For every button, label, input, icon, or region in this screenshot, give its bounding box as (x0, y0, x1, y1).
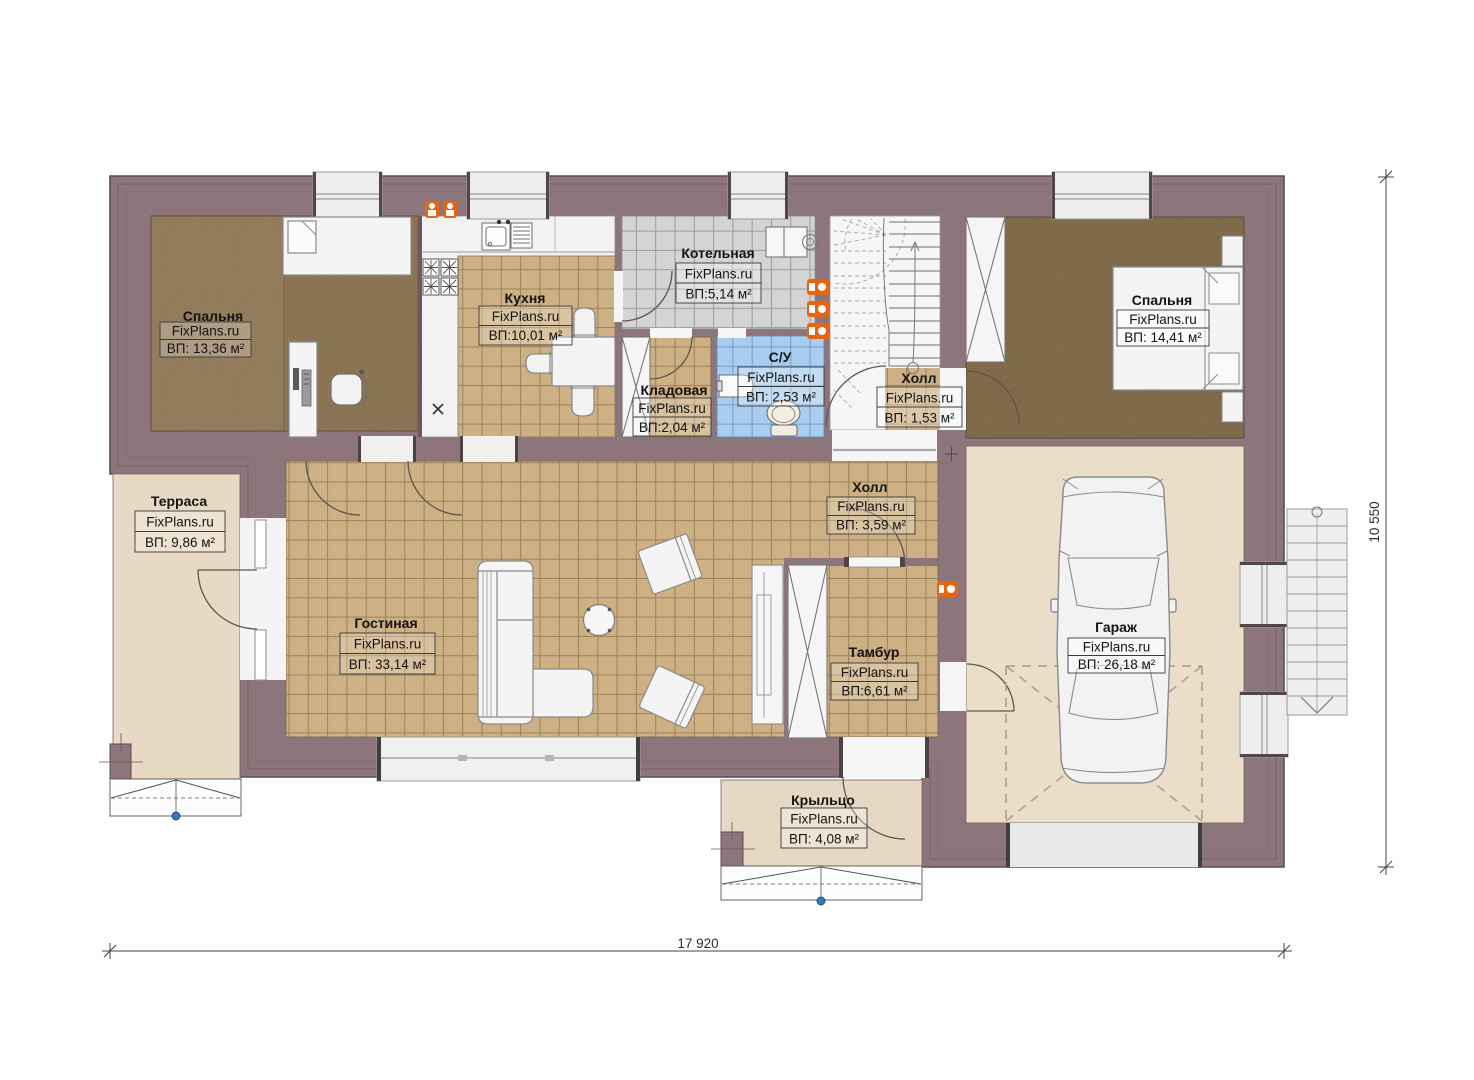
svg-text:ВП: 33,14 м²: ВП: 33,14 м² (349, 657, 427, 672)
svg-text:FixPlans.ru: FixPlans.ru (841, 665, 909, 680)
svg-text:ВП: 2,53 м²: ВП: 2,53 м² (746, 390, 817, 405)
svg-text:Спальня: Спальня (1132, 292, 1192, 308)
svg-text:С/У: С/У (769, 349, 792, 365)
svg-text:Кухня: Кухня (505, 290, 546, 306)
svg-text:FixPlans.ru: FixPlans.ru (685, 267, 753, 282)
svg-text:FixPlans.ru: FixPlans.ru (747, 370, 815, 385)
svg-text:Тамбур: Тамбур (849, 644, 900, 660)
svg-text:FixPlans.ru: FixPlans.ru (1129, 312, 1197, 327)
svg-text:ВП: 26,18 м²: ВП: 26,18 м² (1078, 657, 1156, 672)
svg-text:FixPlans.ru: FixPlans.ru (886, 391, 954, 406)
svg-text:FixPlans.ru: FixPlans.ru (172, 324, 240, 339)
svg-text:ВП:6,61 м²: ВП:6,61 м² (841, 684, 908, 699)
svg-text:Гостиная: Гостиная (354, 615, 417, 631)
svg-text:Гараж: Гараж (1095, 619, 1138, 635)
svg-text:FixPlans.ru: FixPlans.ru (638, 401, 706, 416)
svg-text:FixPlans.ru: FixPlans.ru (146, 515, 214, 530)
svg-text:ВП: 9,86 м²: ВП: 9,86 м² (145, 535, 216, 550)
svg-text:FixPlans.ru: FixPlans.ru (492, 309, 560, 324)
svg-text:Холл: Холл (901, 370, 936, 386)
svg-text:ВП:5,14 м²: ВП:5,14 м² (685, 287, 752, 302)
svg-text:Холл: Холл (852, 479, 887, 495)
svg-text:17 920: 17 920 (677, 936, 718, 951)
svg-text:ВП:10,01 м²: ВП:10,01 м² (489, 328, 563, 343)
svg-text:FixPlans.ru: FixPlans.ru (1083, 640, 1151, 655)
svg-text:ВП: 1,53 м²: ВП: 1,53 м² (884, 411, 955, 426)
svg-text:FixPlans.ru: FixPlans.ru (790, 812, 858, 827)
svg-text:Терраса: Терраса (151, 493, 207, 509)
svg-text:ВП: 4,08 м²: ВП: 4,08 м² (789, 832, 860, 847)
svg-text:FixPlans.ru: FixPlans.ru (354, 637, 422, 652)
svg-text:Кладовая: Кладовая (640, 382, 707, 398)
svg-text:ВП: 3,59 м²: ВП: 3,59 м² (836, 518, 907, 533)
svg-text:Крыльцо: Крыльцо (791, 792, 855, 808)
svg-text:ВП: 13,36 м²: ВП: 13,36 м² (167, 341, 245, 356)
svg-text:Котельная: Котельная (681, 245, 754, 261)
svg-text:10 550: 10 550 (1367, 501, 1382, 542)
svg-text:ВП:2,04 м²: ВП:2,04 м² (639, 420, 706, 435)
svg-text:FixPlans.ru: FixPlans.ru (837, 499, 905, 514)
svg-text:ВП: 14,41 м²: ВП: 14,41 м² (1124, 330, 1202, 345)
